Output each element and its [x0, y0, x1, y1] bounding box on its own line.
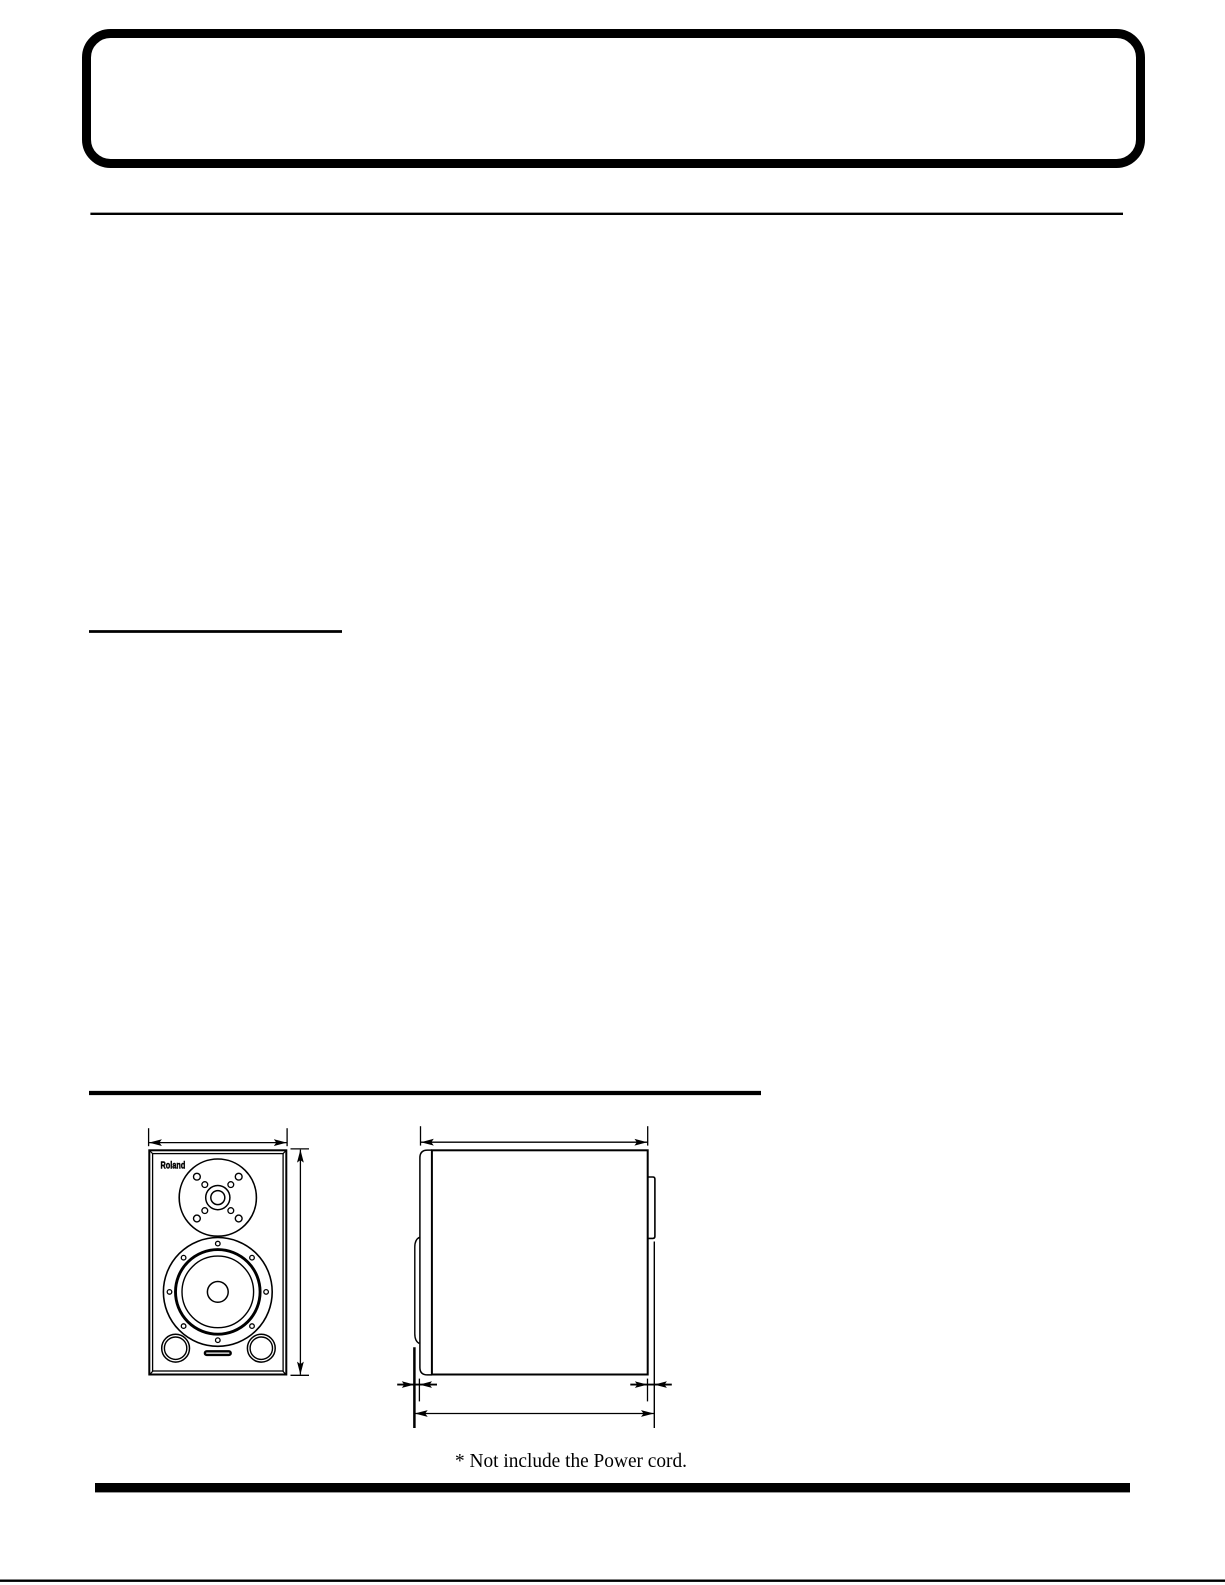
svg-text:Roland: Roland — [161, 1160, 186, 1171]
svg-text:* Not include the Power cord.: * Not include the Power cord. — [455, 1450, 687, 1472]
